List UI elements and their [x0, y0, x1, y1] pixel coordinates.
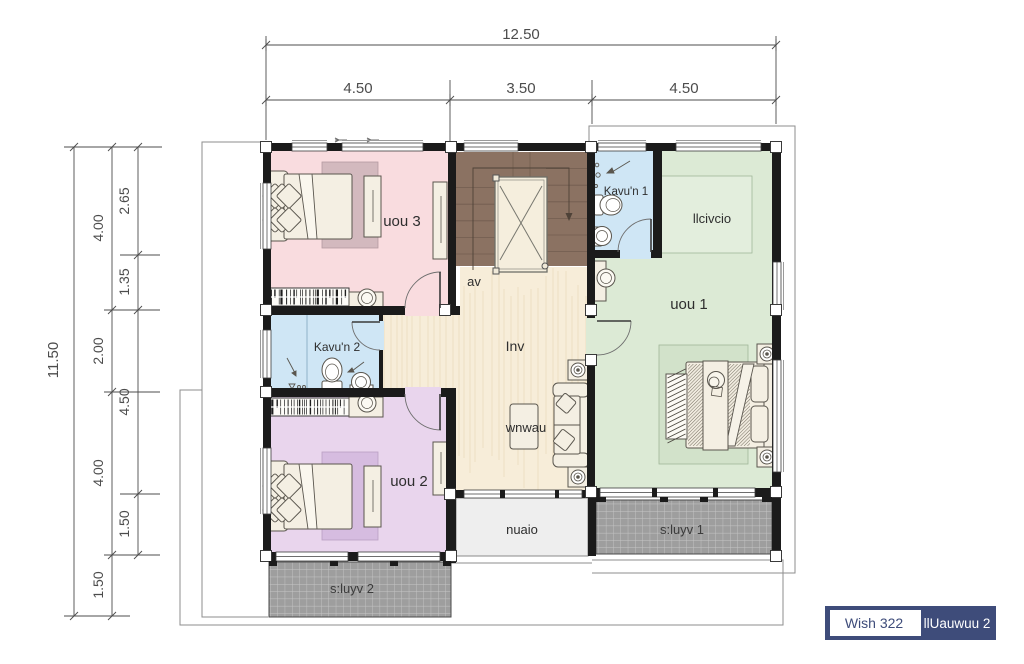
svg-text:4.50: 4.50: [669, 80, 698, 97]
svg-text:s:luyv 2: s:luyv 2: [330, 581, 374, 596]
svg-text:av: av: [467, 274, 481, 289]
svg-text:Kavu'n 1: Kavu'n 1: [604, 186, 648, 198]
svg-text:Kavu'n 2: Kavu'n 2: [314, 340, 361, 354]
svg-text:4.00: 4.00: [90, 459, 106, 486]
svg-text:1.50: 1.50: [90, 571, 106, 598]
svg-text:wnwau: wnwau: [505, 420, 546, 435]
svg-text:1.35: 1.35: [116, 268, 132, 295]
svg-text:s:luyv 1: s:luyv 1: [660, 522, 704, 537]
svg-text:Wish 322: Wish 322: [845, 615, 904, 631]
svg-text:2.00: 2.00: [90, 337, 106, 364]
svg-text:1.50: 1.50: [116, 510, 132, 537]
svg-text:uou 1: uou 1: [670, 296, 708, 313]
svg-text:Inv: Inv: [506, 338, 525, 354]
svg-text:2.65: 2.65: [116, 187, 132, 214]
svg-text:uou 2: uou 2: [390, 473, 428, 490]
svg-text:4.00: 4.00: [90, 214, 106, 241]
svg-text:nuaio: nuaio: [506, 522, 538, 537]
svg-text:4.50: 4.50: [343, 80, 372, 97]
svg-text:uou 3: uou 3: [383, 213, 421, 230]
svg-text:llcivcio: llcivcio: [693, 211, 731, 226]
svg-text:11.50: 11.50: [45, 342, 62, 378]
svg-text:12.50: 12.50: [502, 26, 540, 43]
svg-text:3.50: 3.50: [506, 80, 535, 97]
svg-text:llUauwuu 2: llUauwuu 2: [924, 616, 991, 631]
